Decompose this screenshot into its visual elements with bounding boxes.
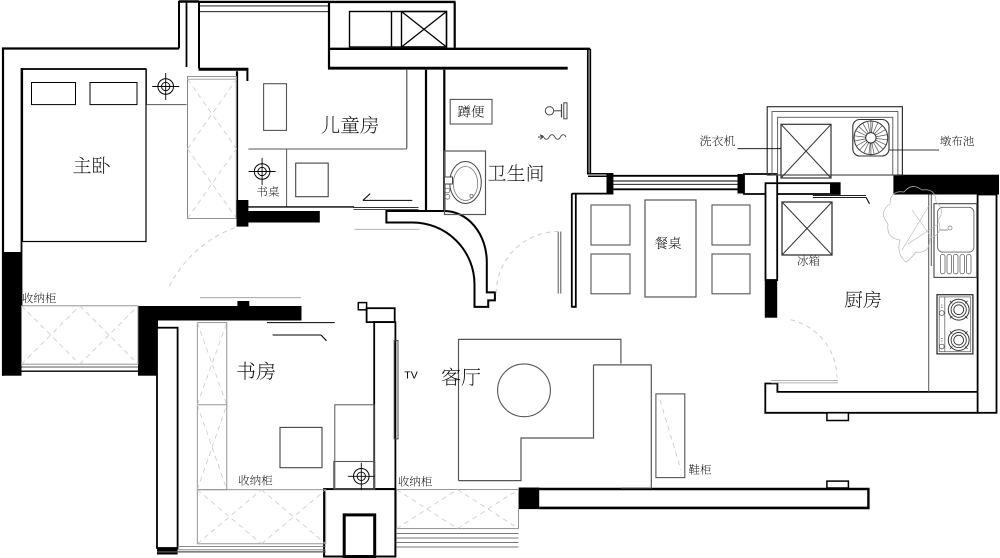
svg-text:TV: TV: [404, 370, 417, 382]
